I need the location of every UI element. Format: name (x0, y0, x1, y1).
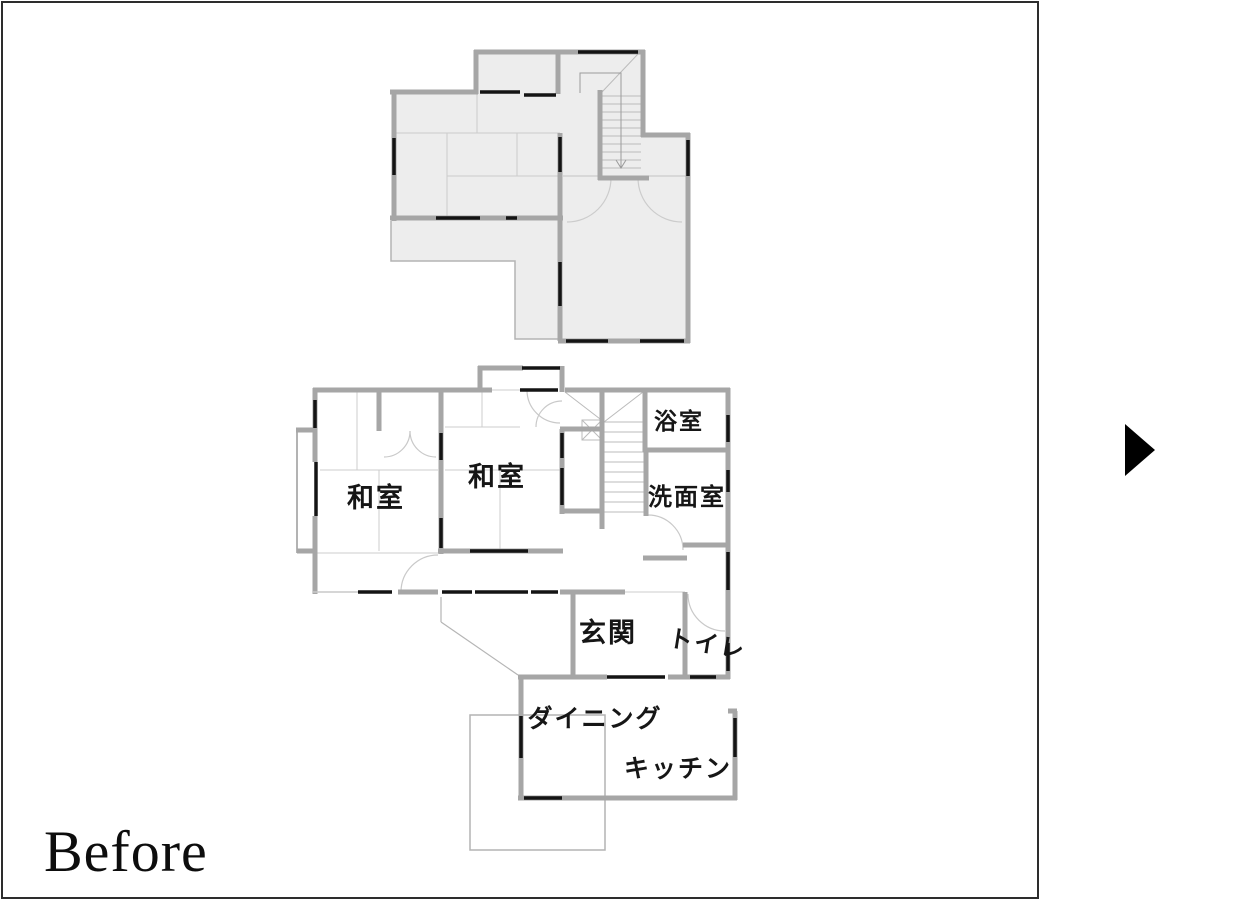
room-label-kitchen: キッチン (624, 754, 732, 783)
room-label-washitsu-center: 和室 (468, 461, 526, 493)
1f-porch-outline (470, 715, 605, 850)
room-label-bathroom: 浴室 (654, 408, 704, 435)
caption-before: Before (44, 818, 208, 885)
room-label-washroom: 洗面室 (648, 483, 726, 511)
room-label-toilet: トイレ (666, 624, 747, 664)
floorplan-canvas: 和室 和室 浴室 洗面室 玄関 トイレ ダイニング キッチン (0, 0, 1040, 900)
room-label-entrance: 玄関 (579, 617, 637, 649)
1f-approach-lines (441, 597, 518, 675)
before-floorplan-page: 和室 和室 浴室 洗面室 玄関 トイレ ダイニング キッチン Before (0, 0, 1240, 900)
room-label-dining: ダイニング (527, 704, 662, 733)
second-floor-plan (390, 50, 690, 343)
first-floor-plan: 和室 和室 浴室 洗面室 玄関 トイレ ダイニング キッチン (296, 366, 748, 850)
next-arrow-icon[interactable] (1125, 424, 1155, 476)
2f-balcony (391, 220, 558, 339)
room-label-washitsu-left: 和室 (347, 482, 405, 514)
